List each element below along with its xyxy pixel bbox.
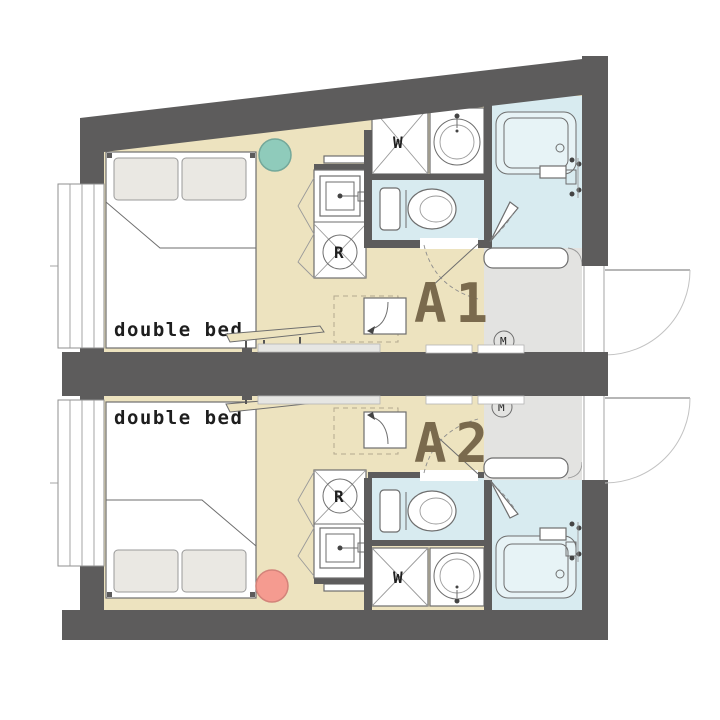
a1-entry-door — [582, 266, 690, 355]
pillow — [182, 158, 246, 200]
a1-washer-label: W — [393, 133, 403, 152]
a1-unit-label: A1 — [414, 272, 497, 335]
a2-vanity-sink — [430, 548, 484, 606]
a1-entry — [484, 248, 582, 352]
a2-entry-door — [582, 396, 690, 483]
a2-bottom-wall — [62, 610, 608, 640]
a1-kitchen-sink — [320, 176, 365, 216]
a1-toilet — [380, 188, 456, 230]
pillow — [182, 550, 246, 592]
a2-kitchen-sink — [320, 528, 365, 568]
a2-door-swing-arc — [605, 398, 690, 483]
pillow — [114, 158, 178, 200]
a1-entry-step — [484, 248, 568, 268]
a2-kitchen-shelf — [324, 584, 370, 591]
a1-bathtub — [496, 112, 576, 174]
a1-window — [50, 184, 104, 348]
a1-vanity-sink — [430, 108, 484, 174]
a1-double-bed: double bed — [106, 152, 256, 348]
a2-double-bed: double bed — [106, 402, 256, 598]
a2-toilet — [380, 490, 456, 532]
a2-unit-label: A2 — [414, 412, 497, 475]
a1-round-marker — [259, 139, 291, 171]
a2-fridge-label: R — [334, 487, 344, 506]
a1-bed-label: double bed — [114, 319, 243, 341]
pillow — [114, 550, 178, 592]
a2-toilet-room — [372, 478, 484, 540]
floor-plan-canvas: double bed R — [0, 0, 720, 720]
a2-washer-label: W — [393, 568, 403, 587]
a2-bed-label: double bed — [114, 407, 243, 429]
a2-right-wall — [582, 480, 608, 640]
unit-a2: double bed R — [50, 396, 690, 640]
a2-window — [50, 400, 104, 566]
a1-fridge-label: R — [334, 243, 344, 262]
a2-bathtub — [496, 536, 576, 598]
a1-door-swing-arc — [605, 270, 690, 355]
party-wall — [62, 344, 608, 404]
a1-toilet-room — [372, 180, 484, 242]
a1-right-wall — [582, 56, 608, 268]
unit-a1: double bed R — [50, 56, 690, 355]
a2-washer: W — [372, 548, 428, 606]
floor-plan-page: double bed R — [0, 0, 720, 720]
a2-round-marker — [256, 570, 288, 602]
a1-kitchen-shelf — [324, 156, 370, 163]
